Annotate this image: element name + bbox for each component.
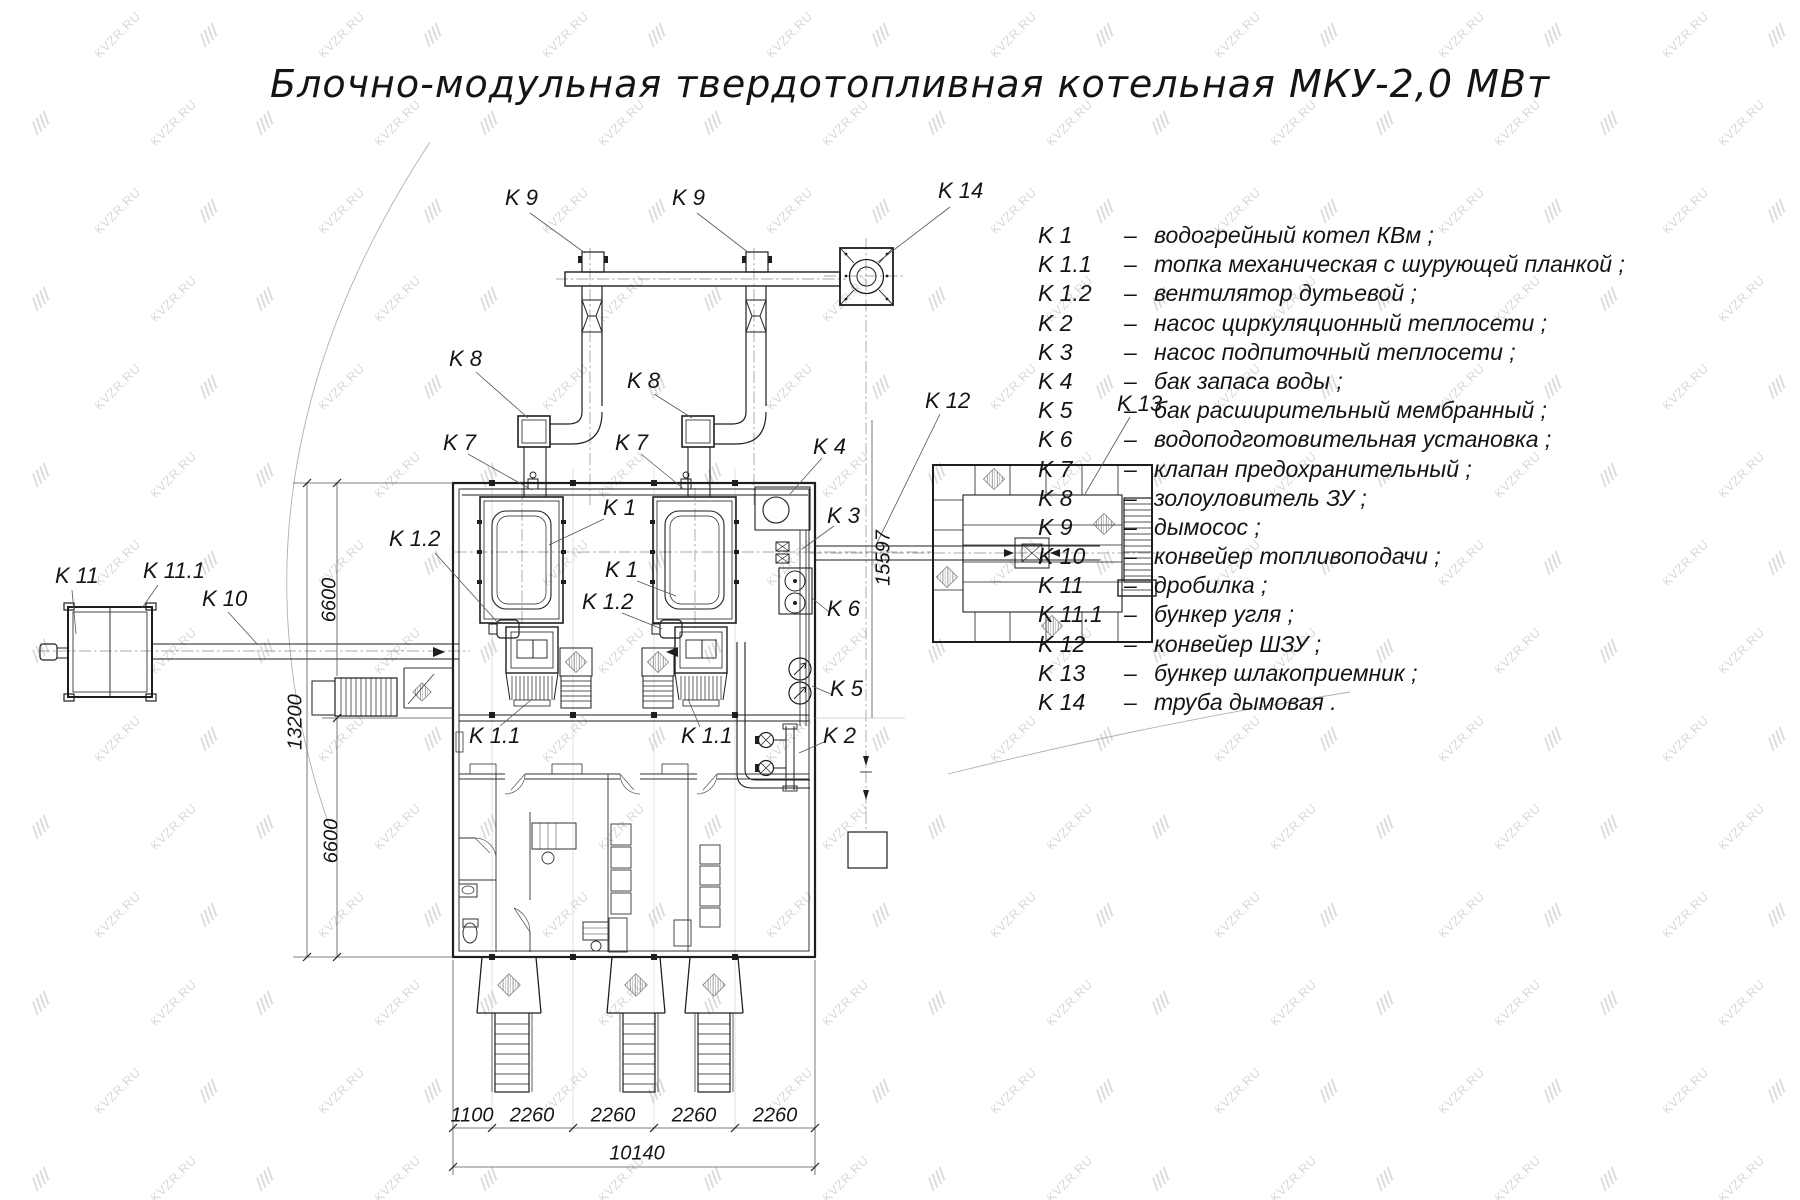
legend-separator: – (1124, 280, 1154, 307)
legend-desc: бункер угля ; (1154, 601, 1294, 628)
legend-code: K 8 (1038, 485, 1124, 512)
legend-item: K 10–конвейер топливоподачи ; (1038, 543, 1583, 572)
legend-item: K 9–дымосос ; (1038, 514, 1583, 543)
legend-separator: – (1124, 601, 1154, 628)
legend-desc: клапан предохранительный ; (1154, 456, 1472, 483)
legend-code: K 1.2 (1038, 280, 1124, 307)
legend-desc: конвейер ШЗУ ; (1154, 631, 1321, 658)
boilers (462, 472, 808, 638)
legend-code: K 14 (1038, 689, 1124, 716)
legend-separator: – (1124, 689, 1154, 716)
dimension-lines (293, 420, 872, 1175)
legend-item: K 1.2–вентилятор дутьевой ; (1038, 280, 1583, 309)
equipment-right (737, 487, 812, 791)
legend-code: K 11 (1038, 572, 1124, 599)
legend-separator: – (1124, 251, 1154, 278)
legend-code: K 1 (1038, 222, 1124, 249)
legend-desc: дробилка ; (1154, 572, 1267, 599)
legend-separator: – (1124, 397, 1154, 424)
safety-valve-k7-left (528, 472, 538, 489)
legend-desc: бак расширительный мембранный ; (1154, 397, 1547, 424)
legend-separator: – (1124, 339, 1154, 366)
legend-code: K 13 (1038, 660, 1124, 687)
legend-code: K 6 (1038, 426, 1124, 453)
legend-code: K 12 (1038, 631, 1124, 658)
leader-lines (72, 207, 1130, 753)
legend-separator: – (1124, 631, 1154, 658)
legend-desc: водоподготовительная установка ; (1154, 426, 1551, 453)
legend-separator: – (1124, 660, 1154, 687)
interior-rooms (404, 668, 809, 952)
legend-separator: – (1124, 514, 1154, 541)
legend-item: K 2–насос циркуляционный теплосети ; (1038, 310, 1583, 339)
legend-item: K 4–бак запаса воды ; (1038, 368, 1583, 397)
legend-item: K 12–конвейер ШЗУ ; (1038, 631, 1583, 660)
legend-separator: – (1124, 456, 1154, 483)
page-title: Блочно-модульная твердотопливная котельн… (270, 62, 1470, 106)
legend-code: K 2 (1038, 310, 1124, 337)
legend-code: K 4 (1038, 368, 1124, 395)
legend-item: K 8–золоуловитель ЗУ ; (1038, 485, 1583, 514)
legend-code: K 3 (1038, 339, 1124, 366)
drawing-sheet: KVZR.RUKVZR.RUKVZR.RUKVZR.RUKVZR.RUKVZR.… (0, 0, 1800, 1200)
legend-code: K 11.1 (1038, 601, 1124, 628)
legend-desc: золоуловитель ЗУ ; (1154, 485, 1367, 512)
legend-code: K 10 (1038, 543, 1124, 570)
legend-list: K 1–водогрейный котел КВм ;K 1.1–топка м… (1038, 222, 1583, 718)
legend-item: K 1.1–топка механическая с шурующей план… (1038, 251, 1583, 280)
fuel-line (40, 603, 459, 716)
safety-valve-k7-right (681, 472, 691, 489)
legend-item: K 11–дробилка ; (1038, 572, 1583, 601)
legend-desc: водогрейный котел КВм ; (1154, 222, 1434, 249)
legend-desc: конвейер топливоподачи ; (1154, 543, 1441, 570)
legend-desc: топка механическая с шурующей планкой ; (1154, 251, 1625, 278)
legend-desc: бак запаса воды ; (1154, 368, 1343, 395)
legend-separator: – (1124, 485, 1154, 512)
legend-item: K 6–водоподготовительная установка ; (1038, 426, 1583, 455)
legend-separator: – (1124, 543, 1154, 570)
legend: K 1–водогрейный котел КВм ;K 1.1–топка м… (1038, 222, 1583, 718)
legend-separator: – (1124, 222, 1154, 249)
legend-desc: труба дымовая . (1154, 689, 1337, 716)
legend-separator: – (1124, 572, 1154, 599)
legend-desc: вентилятор дутьевой ; (1154, 280, 1417, 307)
legend-desc: насос циркуляционный теплосети ; (1154, 310, 1547, 337)
legend-item: K 1–водогрейный котел КВм ; (1038, 222, 1583, 251)
legend-desc: бункер шлакоприемник ; (1154, 660, 1418, 687)
legend-code: K 7 (1038, 456, 1124, 483)
legend-code: K 1.1 (1038, 251, 1124, 278)
flue-system (518, 248, 893, 497)
stokers (433, 627, 727, 708)
porches (477, 957, 743, 1092)
legend-separator: – (1124, 310, 1154, 337)
legend-item: K 5–бак расширительный мембранный ; (1038, 397, 1583, 426)
legend-item: K 14–труба дымовая . (1038, 689, 1583, 718)
legend-item: K 13–бункер шлакоприемник ; (1038, 660, 1583, 689)
legend-separator: – (1124, 426, 1154, 453)
legend-code: K 9 (1038, 514, 1124, 541)
legend-desc: дымосос ; (1154, 514, 1261, 541)
legend-item: K 7–клапан предохранительный ; (1038, 456, 1583, 485)
legend-item: K 3–насос подпиточный теплосети ; (1038, 339, 1583, 368)
legend-code: K 5 (1038, 397, 1124, 424)
legend-separator: – (1124, 368, 1154, 395)
legend-item: K 11.1–бункер угля ; (1038, 601, 1583, 630)
legend-desc: насос подпиточный теплосети ; (1154, 339, 1516, 366)
